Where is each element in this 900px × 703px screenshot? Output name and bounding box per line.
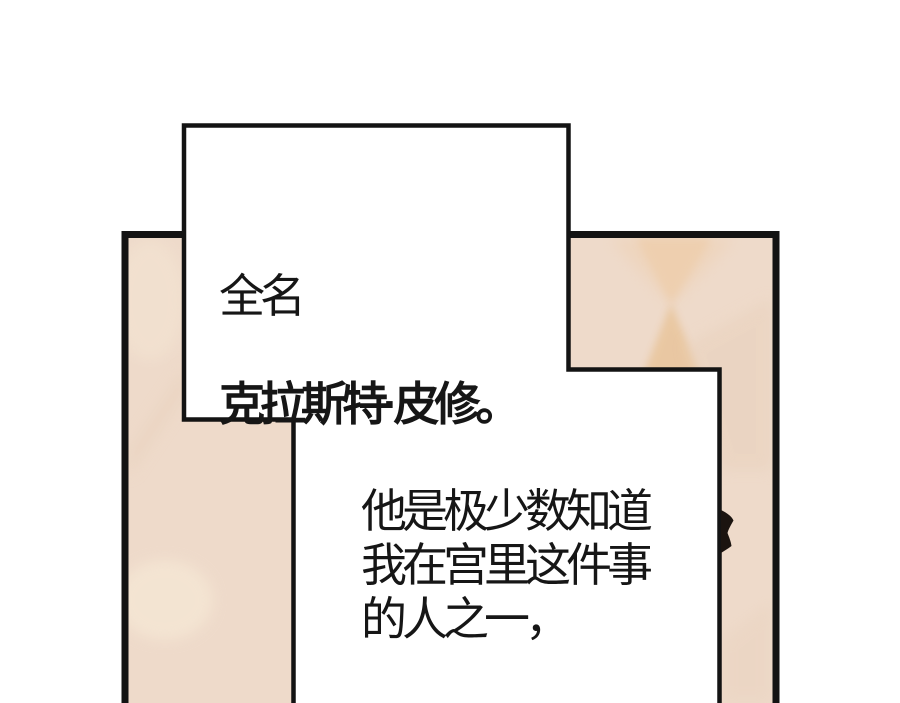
name-value: 克拉斯特·皮修。 <box>219 377 516 431</box>
speech-bubble-text: 全名 克拉斯特·皮修。 <box>219 215 516 485</box>
monologue-text: 他是极少数知道 我在宫里这件事 的人之一， <box>361 484 648 646</box>
name-label: 全名 <box>219 269 516 323</box>
comic-page: 全名 克拉斯特·皮修。 他是极少数知道 我在宫里这件事 的人之一， <box>0 0 900 703</box>
